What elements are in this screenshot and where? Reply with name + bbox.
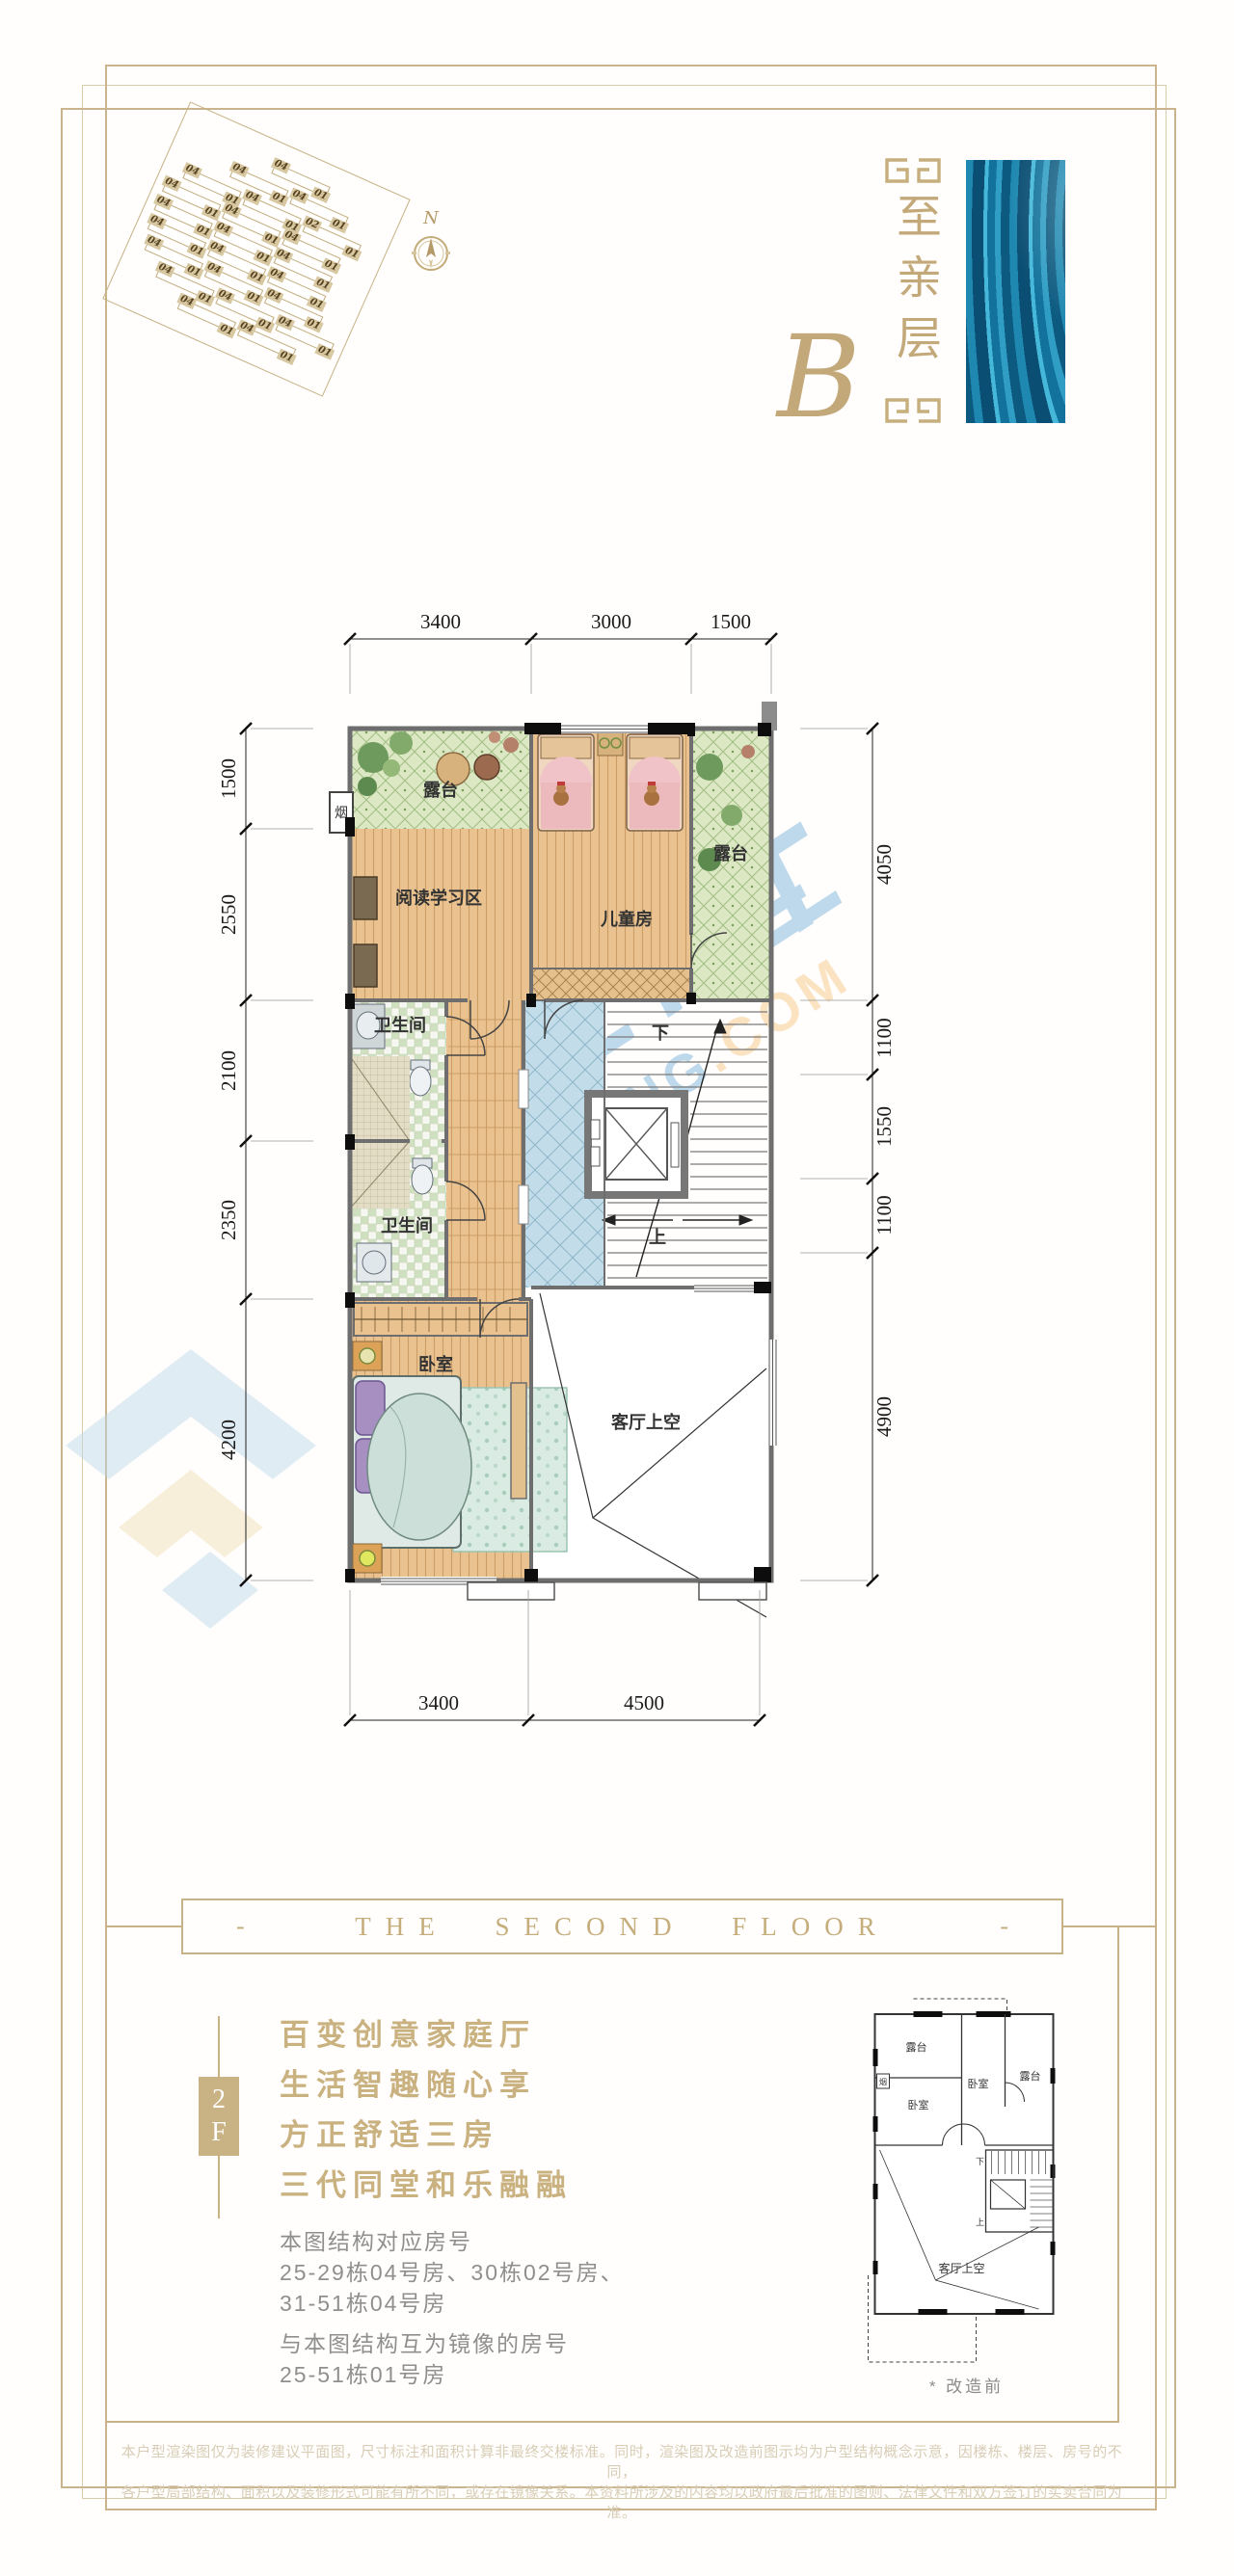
dim-right-5: 4900 xyxy=(872,1396,896,1437)
dim-top-1: 3400 xyxy=(420,610,461,633)
unit-number-label: 01 xyxy=(217,322,237,338)
label-terrace-left: 露台 xyxy=(423,780,458,800)
unit-number-label: 01 xyxy=(244,290,264,306)
heading-title: THE SECOND FLOOR xyxy=(355,1912,890,1942)
study-desk-1 xyxy=(354,877,377,919)
slogan-2: 生活智趣随心享 xyxy=(280,2060,573,2111)
plan-type-letter: B xyxy=(777,310,861,443)
dim-top-3: 1500 xyxy=(711,610,751,633)
unit-number-label: 04 xyxy=(213,221,233,237)
unit-number-label: 01 xyxy=(187,242,207,258)
unit-number-label: 04 xyxy=(162,175,182,192)
dim-left-5: 4200 xyxy=(222,1420,240,1460)
unit-number-label: 04 xyxy=(153,194,174,210)
dim-left-4: 2350 xyxy=(222,1200,240,1240)
thumb-label-bedroom-left: 卧室 xyxy=(908,2098,929,2111)
unit-number-label: 01 xyxy=(269,190,289,206)
unit-number-label: 01 xyxy=(310,187,331,203)
label-bath-2: 卫生间 xyxy=(381,1215,433,1235)
dim-top-2: 3000 xyxy=(591,610,631,633)
blue-silk-artwork xyxy=(966,160,1065,423)
unit-number-label: 04 xyxy=(206,240,227,256)
deco-bracket-bottom-icon xyxy=(884,397,942,424)
slogan-1: 百变创意家庭厅 xyxy=(280,2010,573,2060)
floorplan-poster: { "logo": { "floor_name": "至亲层", "letter… xyxy=(0,0,1234,2576)
unit-info-mirror-title: 与本图结构互为镜像的房号 xyxy=(280,2328,625,2359)
compass-icon xyxy=(410,228,452,279)
unit-info-title: 本图结构对应房号 xyxy=(280,2226,625,2257)
unit-info-line1: 25-29栋04号房、30栋02号房、 xyxy=(280,2257,625,2288)
unit-number-label: 01 xyxy=(329,217,349,233)
thumbnail-plan-drawing: 露台 露台 烟 卧室 卧室 下 上 客厅上空 xyxy=(858,1991,1075,2377)
slogan-3: 方正舒适三房 xyxy=(280,2111,573,2161)
section-heading: - THE SECOND FLOOR - xyxy=(181,1899,1063,1954)
dim-right-2: 1100 xyxy=(872,1018,896,1057)
floor-plan-drawing: 烟 露台 阅读学习区 儿童房 露台 卫生间 卫生间 xyxy=(222,569,916,1783)
unit-number-label: 01 xyxy=(261,231,282,248)
label-stair-down: 下 xyxy=(652,1023,669,1043)
dim-left-3: 2100 xyxy=(222,1050,240,1091)
label-bedroom: 卧室 xyxy=(418,1354,453,1374)
bedroom-cabinet xyxy=(511,1383,526,1499)
dim-right-1: 4050 xyxy=(872,844,896,885)
floor-name-vertical: 至亲层 xyxy=(881,193,948,400)
label-study: 阅读学习区 xyxy=(395,888,482,908)
disclaimer-line-1: 本户型渲染图仅为装修建议平面图，尺寸标注和面积计算非最终交楼标准。同时，渲染图及… xyxy=(111,2442,1133,2483)
unit-number-label: 01 xyxy=(184,263,204,279)
bedroom-bed xyxy=(353,1376,471,1548)
corridor-wood xyxy=(446,1000,523,1299)
floor-tag-level: 2 xyxy=(212,2084,226,2116)
site-plan-buildings: 0401040104010401040102010401040104010401… xyxy=(102,101,410,396)
dim-left-1: 1500 xyxy=(222,758,240,799)
unit-number-label: 01 xyxy=(201,204,222,221)
label-kids-room: 儿童房 xyxy=(600,909,653,929)
unit-number-label: 04 xyxy=(144,233,164,250)
unit-number-label: 01 xyxy=(195,290,215,306)
dim-bottom-2: 4500 xyxy=(624,1691,664,1714)
floor-tag-suffix: F xyxy=(211,2116,227,2149)
unit-number-label: 04 xyxy=(267,266,287,282)
kids-wardrobe xyxy=(531,969,691,1000)
unit-number-label: 01 xyxy=(247,269,267,285)
thumbnail-plan: 露台 露台 烟 卧室 卧室 下 上 客厅上空 xyxy=(858,1991,1075,2377)
site-plan: 0401040104010401040102010401040104010401… xyxy=(143,108,470,463)
unit-number-label: 04 xyxy=(229,161,250,177)
slogan-4: 三代同堂和乐融融 xyxy=(280,2161,573,2211)
bedroom-closet xyxy=(354,1303,527,1336)
dim-bottom-1: 3400 xyxy=(418,1691,459,1714)
dim-right-4: 1100 xyxy=(872,1195,896,1235)
unit-number-label: 01 xyxy=(321,257,341,274)
unit-number-label: 01 xyxy=(255,317,275,333)
unit-number-label: 04 xyxy=(147,213,167,229)
main-floor-plan: 烟 露台 阅读学习区 儿童房 露台 卫生间 卫生间 xyxy=(222,569,916,1783)
floor-tag: 2 F xyxy=(199,2077,239,2156)
unit-number-label: 01 xyxy=(313,277,334,293)
unit-number-label: 01 xyxy=(304,316,324,332)
north-label: N xyxy=(409,208,453,228)
unit-number-label: 02 xyxy=(302,215,322,231)
unit-number-label: 04 xyxy=(203,260,224,277)
unit-number-label: 04 xyxy=(273,247,293,263)
unit-info-mirror-line: 25-51栋01号房 xyxy=(280,2359,625,2390)
kids-bed-2 xyxy=(627,734,683,831)
unit-info-line2: 31-51栋04号房 xyxy=(280,2288,625,2319)
label-stair-up: 上 xyxy=(649,1228,666,1247)
thumb-label-chimney: 烟 xyxy=(879,2078,887,2086)
unit-number-label: 04 xyxy=(155,261,175,278)
elevator xyxy=(588,1094,684,1195)
dim-right-3: 1550 xyxy=(872,1106,896,1147)
unit-number-label: 04 xyxy=(215,287,235,304)
label-bath-1: 卫生间 xyxy=(374,1015,426,1035)
disclaimer: 本户型渲染图仅为装修建议平面图，尺寸标注和面积计算非最终交楼标准。同时，渲染图及… xyxy=(111,2442,1133,2523)
thumbnail-caption: * 改造前 xyxy=(858,2373,1075,2397)
thumb-label-living-void: 客厅上空 xyxy=(938,2261,984,2275)
label-terrace-right: 露台 xyxy=(713,843,748,863)
dim-left-2: 2550 xyxy=(222,894,240,935)
unit-number-label: 04 xyxy=(182,162,202,178)
unit-number-label: 01 xyxy=(341,245,362,261)
content-right-rule xyxy=(1117,1926,1119,2422)
deco-bracket-top-icon xyxy=(884,157,942,184)
north-compass: N xyxy=(409,208,453,281)
unit-number-label: 01 xyxy=(253,250,273,266)
heading-dash-left: - xyxy=(236,1912,245,1941)
unit-number-label: 04 xyxy=(242,189,262,205)
unit-number-label: 01 xyxy=(307,296,327,312)
unit-number-label: 04 xyxy=(271,157,291,173)
disclaimer-line-2: 各户型局部结构、面积以及装修形式可能有所不同，或存在镜像关系。本资料所涉及的内容… xyxy=(111,2483,1133,2523)
unit-number-label: 04 xyxy=(264,287,284,304)
thumb-label-terrace-left: 露台 xyxy=(906,2040,927,2054)
label-living-void: 客厅上空 xyxy=(611,1412,681,1432)
unit-number-label: 01 xyxy=(193,223,213,239)
footer-rule xyxy=(105,2421,1119,2423)
heading-dash-right: - xyxy=(1000,1912,1008,1941)
slogan-list: 百变创意家庭厅 生活智趣随心享 方正舒适三房 三代同堂和乐融融 xyxy=(280,2010,573,2211)
unit-info: 本图结构对应房号 25-29栋04号房、30栋02号房、 31-51栋04号房 … xyxy=(280,2226,625,2390)
unit-number-label: 04 xyxy=(275,314,295,331)
thumb-label-stair-down: 下 xyxy=(976,2157,984,2166)
kids-bed-1 xyxy=(538,734,594,831)
thumb-label-terrace-right: 露台 xyxy=(1020,2069,1041,2083)
unit-number-label: 01 xyxy=(314,343,335,359)
thumb-elevator xyxy=(991,2180,1026,2209)
unit-number-label: 04 xyxy=(236,319,256,335)
unit-number-label: 04 xyxy=(176,293,197,309)
kids-nightstand xyxy=(598,730,623,756)
study-desk-2 xyxy=(354,944,377,987)
unit-number-label: 04 xyxy=(289,188,309,204)
unit-number-label: 01 xyxy=(277,349,297,365)
thumb-label-stair-up: 上 xyxy=(976,2217,984,2227)
thumb-label-bedroom-right: 卧室 xyxy=(968,2077,989,2090)
